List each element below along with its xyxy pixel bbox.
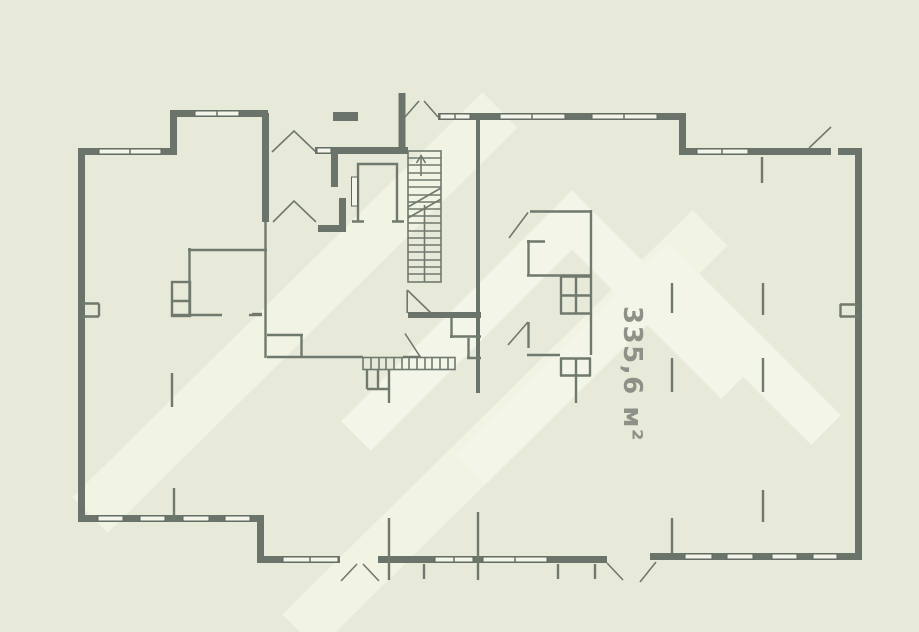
elevator-door: [352, 177, 358, 206]
top-wall-stub: [333, 112, 358, 121]
floor-plan-canvas: 335,6 м²: [0, 0, 919, 632]
left-room-cabinet: [172, 282, 190, 316]
floor-plan-svg: 335,6 м²: [0, 0, 919, 632]
area-label: 335,6 м²: [617, 306, 647, 442]
